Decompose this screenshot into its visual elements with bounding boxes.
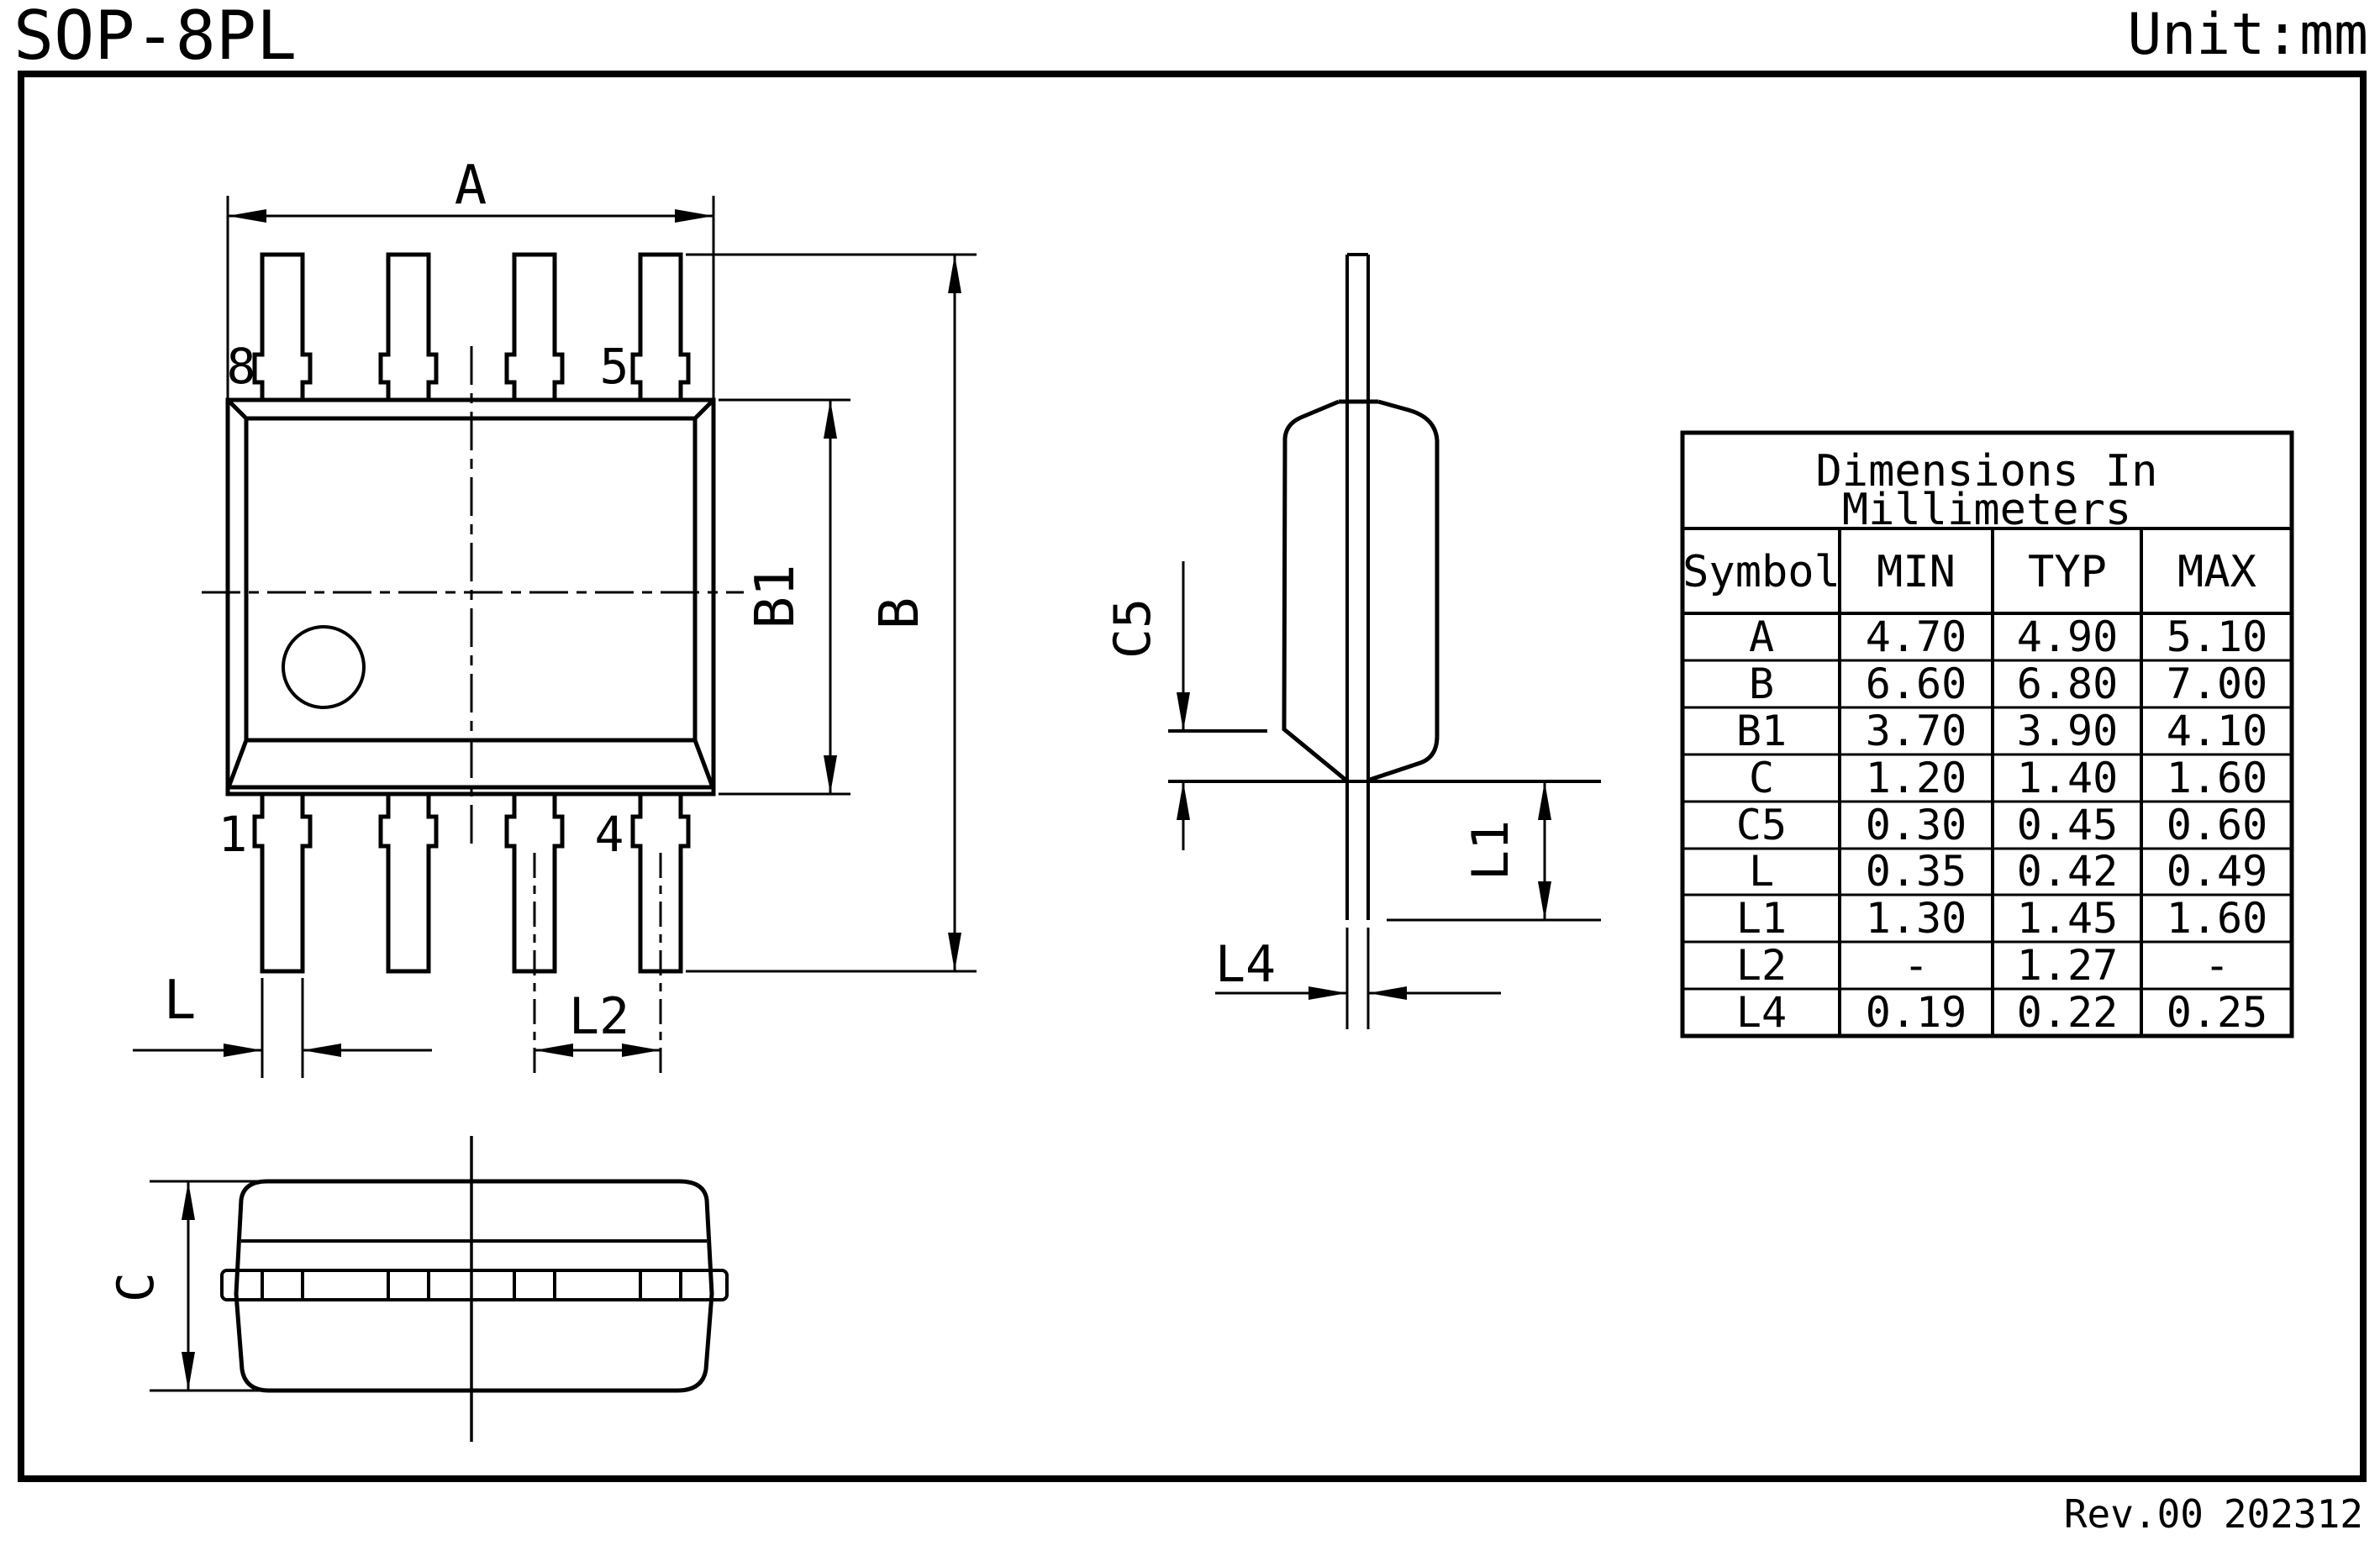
svg-text:0.49: 0.49 [2167, 847, 2267, 896]
svg-text:L2: L2 [1736, 941, 1787, 990]
svg-text:1.20: 1.20 [1866, 754, 1967, 802]
dim-label-b1: B1 [745, 564, 807, 628]
dimension-l1: L1 [1387, 781, 1601, 920]
svg-text:6.60: 6.60 [1866, 660, 1967, 708]
front-view: C [107, 1136, 727, 1442]
table-row: L 0.35 0.42 0.49 [1749, 847, 2267, 896]
dim-label-c: C [107, 1272, 166, 1302]
table-row: L1 1.30 1.45 1.60 [1736, 894, 2267, 943]
dimension-b1: B1 [719, 400, 850, 794]
svg-text:C5: C5 [1736, 801, 1787, 849]
table-row: C5 0.30 0.45 0.60 [1736, 801, 2267, 849]
side-view: C5 L1 L4 [1103, 255, 1601, 1029]
front-lead-band [222, 1270, 727, 1300]
svg-text:0.19: 0.19 [1866, 988, 1967, 1037]
dim-label-b: B [869, 597, 931, 630]
table-row: B 6.60 6.80 7.00 [1749, 660, 2267, 708]
svg-text:B: B [1749, 660, 1774, 708]
svg-text:1.30: 1.30 [1866, 894, 1967, 943]
svg-text:0.30: 0.30 [1866, 801, 1967, 849]
dim-label-l2: L2 [569, 987, 629, 1046]
pin-label-4: 4 [595, 806, 624, 863]
page-title: SOP-8PL [13, 0, 297, 75]
col-header-max: MAX [2177, 547, 2256, 597]
col-header-typ: TYP [2028, 547, 2107, 597]
center-lines [202, 346, 744, 847]
svg-text:3.90: 3.90 [2017, 707, 2118, 755]
svg-text:1.60: 1.60 [2167, 754, 2267, 802]
table-body: A 4.70 4.90 5.10 B 6.60 6.80 7.00 B1 3.7… [1736, 613, 2267, 1037]
dim-label-l4: L4 [1215, 935, 1276, 994]
svg-text:4.90: 4.90 [2017, 613, 2118, 661]
side-lead [1347, 255, 1368, 920]
date-code-label: 202312 [2224, 1491, 2363, 1537]
svg-text:L: L [1749, 847, 1774, 896]
table-row: A 4.70 4.90 5.10 [1749, 613, 2267, 661]
dim-label-l: L [164, 970, 197, 1032]
svg-text:0.22: 0.22 [2017, 988, 2118, 1037]
svg-text:3.70: 3.70 [1866, 707, 1967, 755]
col-header-symbol: Symbol [1682, 547, 1840, 597]
dimensions-table: Dimensions In Millimeters Symbol MIN TYP… [1682, 433, 2292, 1037]
svg-text:7.00: 7.00 [2167, 660, 2267, 708]
svg-text:-: - [2204, 941, 2230, 990]
svg-text:6.80: 6.80 [2017, 660, 2118, 708]
top-view: 8 5 1 4 A B1 B [133, 155, 977, 1078]
unit-label: Unit:mm [2127, 2, 2368, 68]
dimension-c5: C5 [1103, 561, 1183, 850]
svg-text:L4: L4 [1736, 988, 1787, 1037]
revision-label: Rev.00 [2064, 1491, 2204, 1537]
side-body-outline [1284, 402, 1437, 780]
svg-text:1.45: 1.45 [2017, 894, 2118, 943]
dimension-l4: L4 [1215, 928, 1501, 1029]
table-row: L4 0.19 0.22 0.25 [1736, 988, 2267, 1037]
svg-text:-: - [1903, 941, 1929, 990]
svg-text:5.10: 5.10 [2167, 613, 2267, 661]
pin1-indicator-dimple [283, 627, 364, 707]
svg-text:0.42: 0.42 [2017, 847, 2118, 896]
table-column-headers: Symbol MIN TYP MAX [1682, 547, 2256, 597]
dimension-l2: L2 [534, 987, 661, 1050]
svg-text:1.60: 1.60 [2167, 894, 2267, 943]
svg-text:0.25: 0.25 [2167, 988, 2267, 1037]
dim-label-l1: L1 [1461, 820, 1520, 881]
dimension-l: L [133, 970, 432, 1078]
svg-text:0.35: 0.35 [1866, 847, 1967, 896]
table-row: B1 3.70 3.90 4.10 [1736, 707, 2267, 755]
dim-label-c5: C5 [1103, 598, 1162, 659]
pin-label-1: 1 [219, 806, 248, 863]
col-header-min: MIN [1877, 547, 1956, 597]
svg-text:4.10: 4.10 [2167, 707, 2267, 755]
table-row: C 1.20 1.40 1.60 [1749, 754, 2267, 802]
svg-text:C: C [1749, 754, 1774, 802]
datasheet-page: SOP-8PL Unit:mm Rev.00 202312 [0, 0, 2380, 1551]
table-row: L2 - 1.27 - [1736, 941, 2230, 990]
svg-text:A: A [1749, 613, 1774, 661]
page-frame [21, 74, 2363, 1479]
table-title-line2: Millimeters [1842, 485, 2131, 535]
svg-text:1.40: 1.40 [2017, 754, 2118, 802]
svg-text:0.60: 0.60 [2167, 801, 2267, 849]
svg-text:B1: B1 [1736, 707, 1787, 755]
dim-label-a: A [455, 155, 487, 217]
pin-label-8: 8 [227, 338, 256, 395]
pin-label-5: 5 [600, 338, 629, 395]
svg-text:L1: L1 [1736, 894, 1787, 943]
svg-text:4.70: 4.70 [1866, 613, 1967, 661]
svg-text:0.45: 0.45 [2017, 801, 2118, 849]
svg-text:1.27: 1.27 [2017, 941, 2118, 990]
